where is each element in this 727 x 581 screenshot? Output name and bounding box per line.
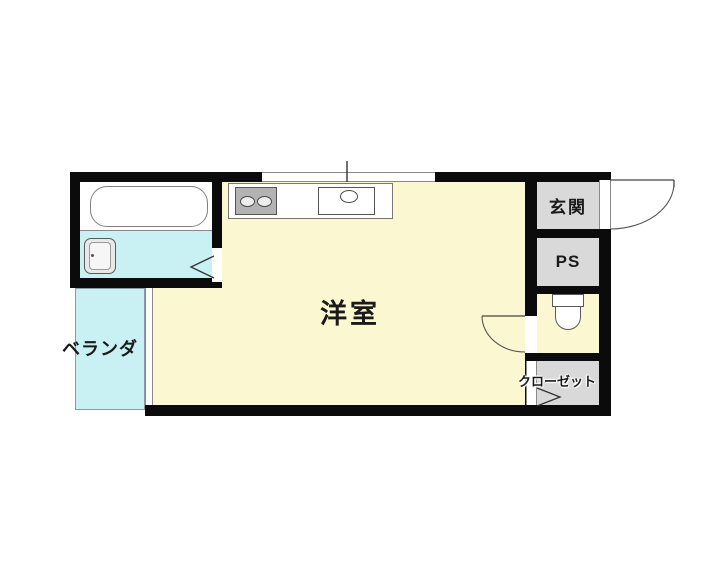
entrance-door-arc: [611, 183, 674, 229]
closet-folding-door-icon: [537, 388, 560, 406]
veranda-label: ベランダ: [62, 335, 138, 361]
floor-plan: 玄関 PS 洋室 ベランダ クローゼット: [0, 0, 727, 581]
closet-label: クローゼット: [518, 371, 596, 390]
toilet-door-arc: [482, 316, 525, 352]
door-symbols-overlay: [0, 0, 727, 581]
bathroom-folding-door-icon: [191, 256, 214, 278]
